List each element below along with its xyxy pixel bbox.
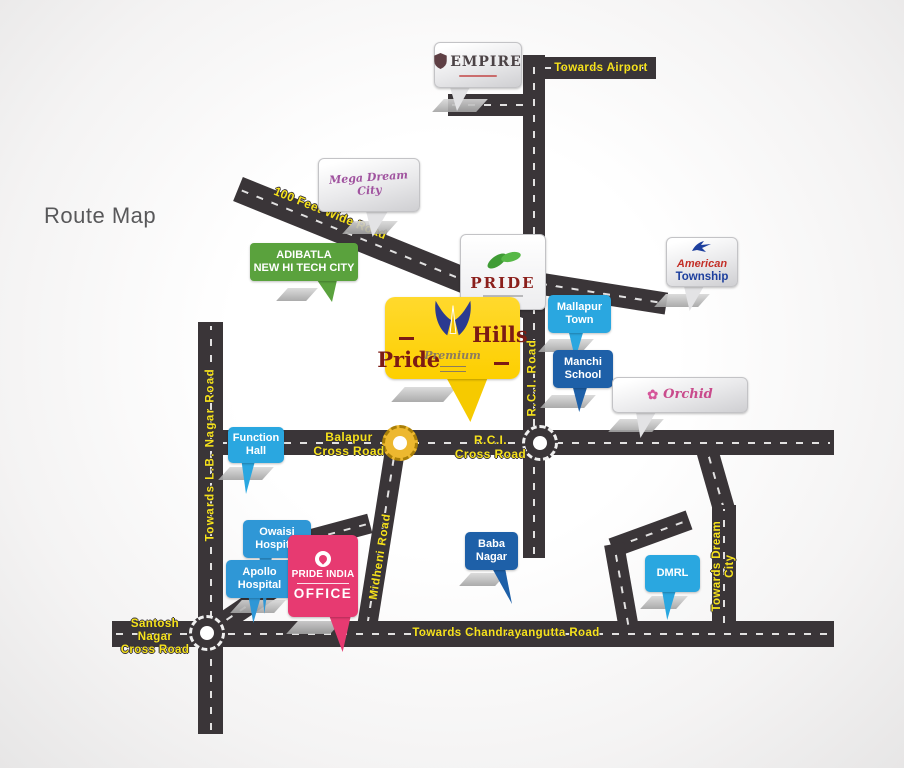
callout-american-township: American Township bbox=[666, 237, 738, 287]
pride-india-divider bbox=[297, 583, 349, 584]
callout-empire: EMPIRE bbox=[434, 42, 522, 88]
pride-hills-word1: Pride bbox=[377, 323, 440, 373]
pride-hills-word2: Hills bbox=[472, 323, 528, 373]
pride-logo-text: PRIDE bbox=[470, 275, 535, 293]
callout-mega-dream-city: Mega Dream City bbox=[318, 158, 420, 212]
junction-label-balapur: Balapur Cross Road bbox=[305, 431, 393, 459]
american-word: American bbox=[677, 258, 727, 271]
leaves-icon bbox=[484, 247, 522, 275]
road-label-towards-lb-nagar: Towards L.B. Nagar Road bbox=[204, 345, 217, 565]
callout-shadow bbox=[391, 387, 457, 402]
page-title: Route Map bbox=[44, 203, 156, 229]
callout-mallapur-town: Mallapur Town bbox=[548, 295, 611, 333]
empire-logo-text: EMPIRE bbox=[450, 54, 522, 71]
empire-tagline-mark bbox=[459, 75, 497, 77]
callout-adibatla: ADIBATLA NEW HI TECH CITY bbox=[250, 243, 358, 281]
pride-india-logo-icon bbox=[315, 551, 331, 567]
callout-baba-nagar: Baba Nagar bbox=[465, 532, 518, 570]
callout-orchid: ✿ Orchid bbox=[612, 377, 748, 413]
junction-label-rci: R.C.I. Cross Road bbox=[448, 434, 533, 462]
callout-shadow bbox=[654, 294, 710, 307]
callout-dmrl: DMRL bbox=[645, 555, 700, 592]
road-dmrl-south bbox=[604, 542, 639, 630]
callout-manchi-school: Manchi School bbox=[553, 350, 613, 388]
flower-icon: ✿ bbox=[647, 387, 658, 402]
pride-india-line2: OFFICE bbox=[294, 586, 353, 602]
callout-tail bbox=[446, 377, 488, 422]
pride-india-line1: PRIDE INDIA bbox=[292, 569, 355, 581]
eagle-icon bbox=[691, 240, 713, 257]
road-label-rci-road: R.C.I. Road bbox=[526, 326, 539, 430]
road-label-towards-dream-city: Towards Dream City bbox=[711, 508, 737, 624]
callout-pride-india-office: PRIDE INDIA OFFICE bbox=[288, 535, 358, 617]
callout-apollo-hospital: Apollo Hospital bbox=[226, 560, 293, 598]
mega-dream-city-text: Mega Dream City bbox=[318, 169, 420, 202]
orchid-text: Orchid bbox=[663, 387, 713, 402]
road-label-towards-chandrayangutta: Towards Chandrayangutta Road bbox=[408, 627, 604, 640]
callout-tail bbox=[317, 280, 337, 302]
route-map: Route Map Towards Airport 100 Feet Wide … bbox=[0, 0, 904, 768]
road-label-towards-airport: Towards Airport bbox=[548, 62, 654, 75]
pride-hills-tagline: Premium bbox=[385, 350, 520, 363]
shield-icon bbox=[434, 53, 447, 73]
callout-function-hall: Function Hall bbox=[228, 427, 284, 463]
junction-label-santosh-nagar: Santosh Nagar Cross Road bbox=[112, 618, 198, 658]
callout-shadow bbox=[276, 288, 318, 301]
township-word: Township bbox=[676, 271, 729, 285]
callout-pride-hills: Pride Hills Premium bbox=[385, 297, 520, 379]
callout-shadow bbox=[540, 395, 596, 408]
